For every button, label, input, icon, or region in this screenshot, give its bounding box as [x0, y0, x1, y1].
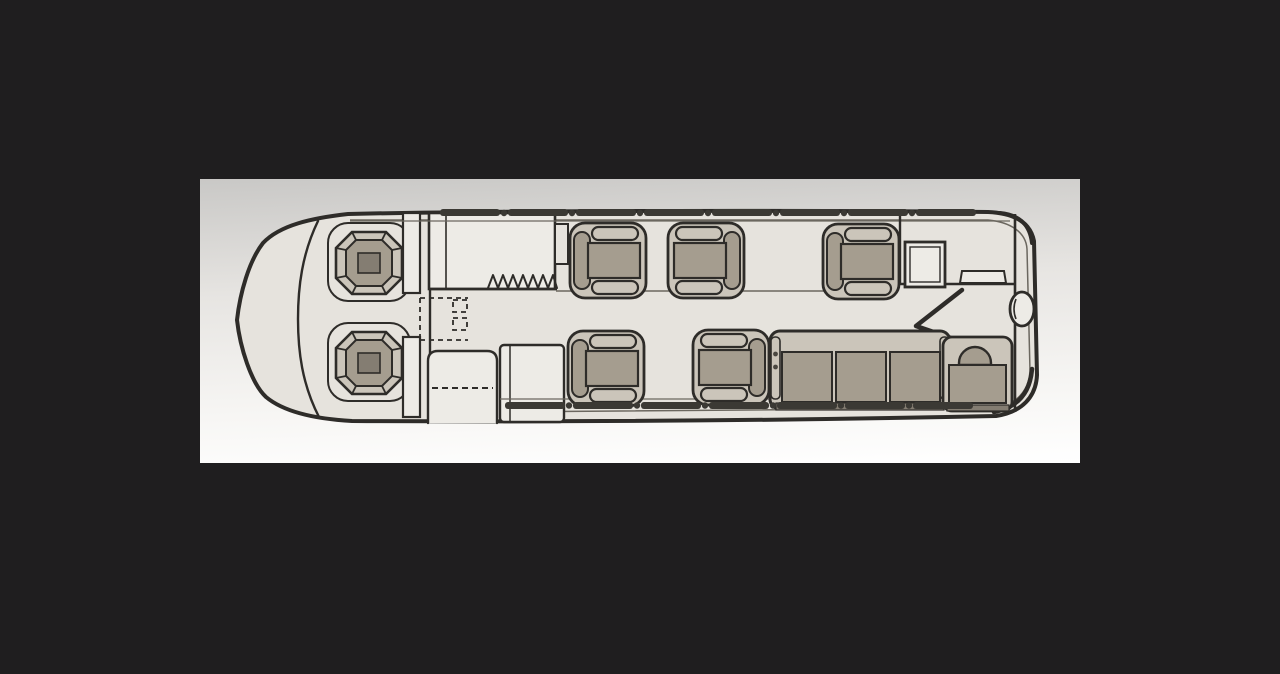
sidewall-ledge	[555, 224, 568, 264]
divan	[770, 331, 950, 410]
window-band-bottom	[505, 402, 973, 409]
sidewall-cabinet-lower	[403, 337, 420, 417]
sidewall-cabinet-upper	[403, 213, 420, 293]
cabin-floorplan-svg	[200, 179, 1080, 463]
club-seat-2	[668, 223, 744, 298]
club-seat-4	[568, 331, 644, 406]
vanity-shelf	[960, 271, 1006, 283]
divan-cushion-1	[782, 352, 832, 402]
divan-cushion-3	[890, 352, 940, 402]
window-band-top	[440, 209, 976, 216]
lavatory-seat	[943, 337, 1012, 411]
crew-seat-right	[336, 332, 402, 394]
club-seat-1	[570, 223, 646, 298]
club-seat-3	[823, 224, 899, 299]
side-table	[905, 242, 945, 287]
floorplan-card	[200, 179, 1080, 463]
divan-cushion-2	[836, 352, 886, 402]
dark-backdrop: { "scene": { "description": "Black backg…	[0, 0, 1280, 674]
crew-seat-left	[336, 232, 402, 294]
club-seat-5	[693, 330, 769, 405]
